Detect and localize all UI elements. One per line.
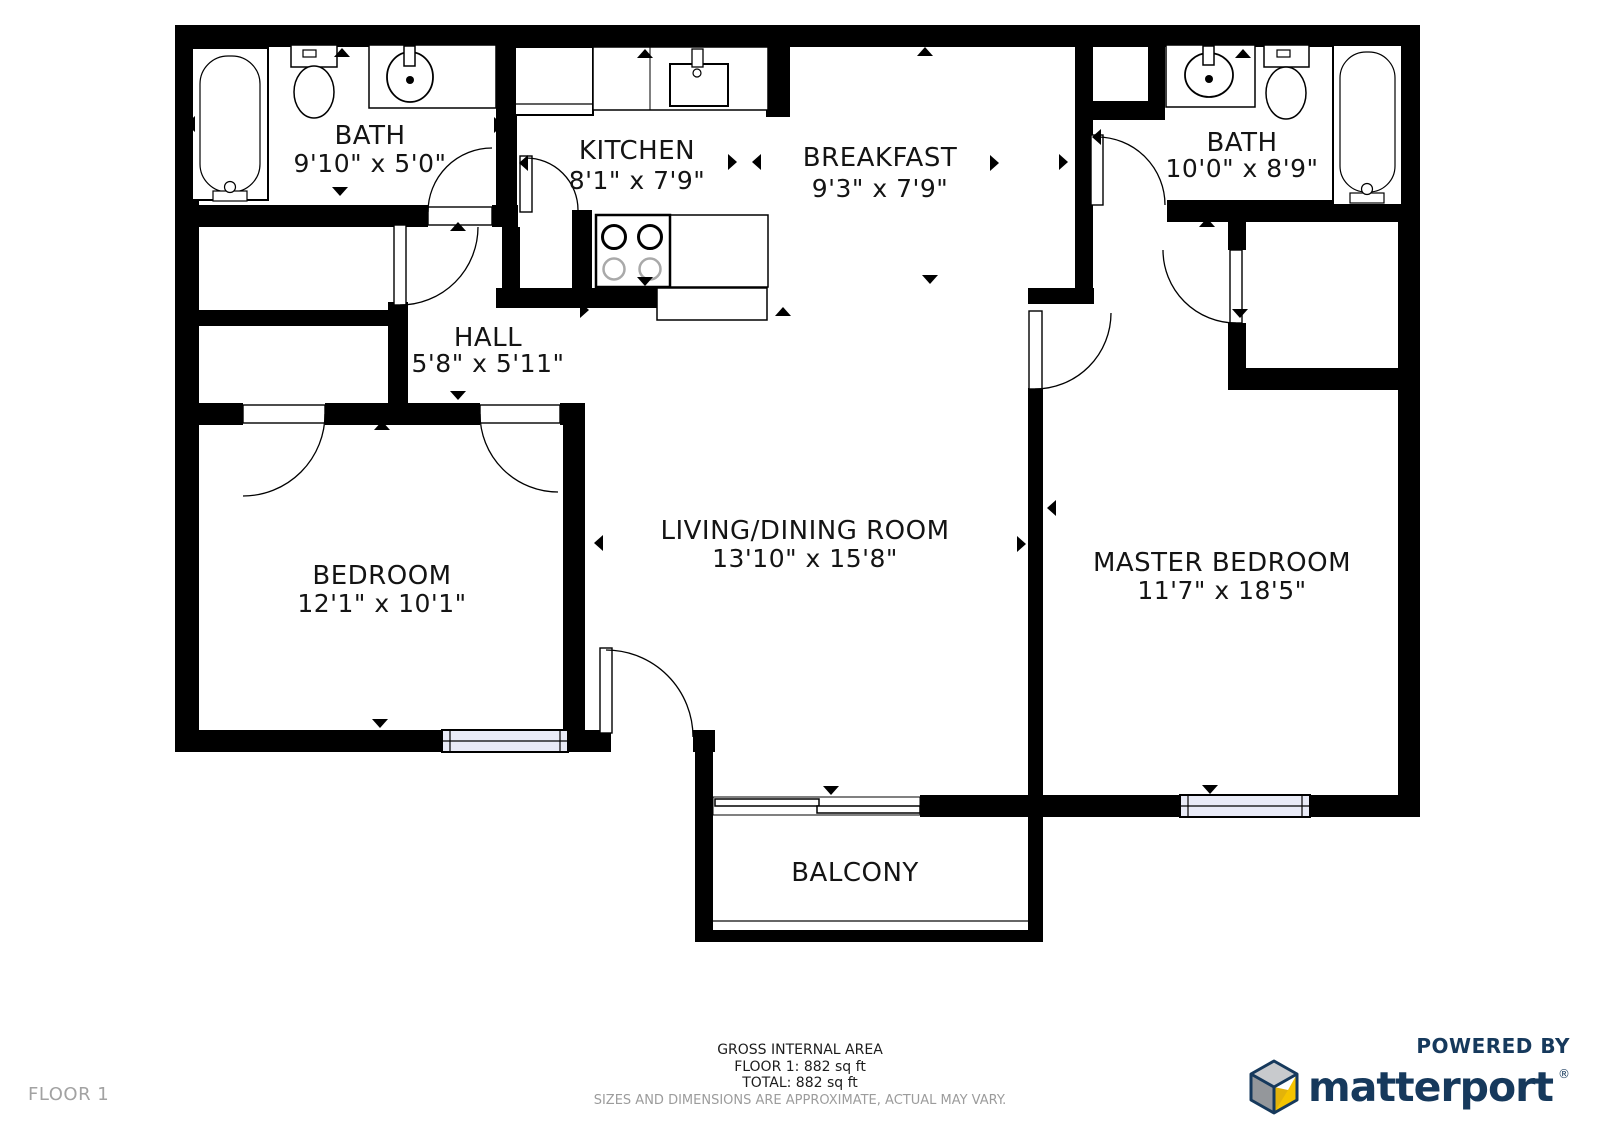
- bedroom-closet-door: [243, 405, 325, 496]
- bath2-door: [1091, 135, 1165, 205]
- room-labels: BATH 9'10" x 5'0" KITCHEN 8'1" x 7'9" BR…: [294, 121, 1352, 888]
- balcony-sliding-door: [713, 797, 920, 815]
- bathtub-icon: [1333, 45, 1402, 205]
- fridge-icon: [515, 47, 593, 115]
- bath1-label: BATH: [334, 121, 405, 151]
- master-closet-door: [1163, 250, 1242, 323]
- hall-dims: 5'8" x 5'11": [412, 349, 565, 378]
- living-label: LIVING/DINING ROOM: [660, 516, 949, 546]
- matterport-branding: POWERED BY matterport ®: [1247, 1034, 1570, 1115]
- master-entry-door: [1029, 311, 1111, 389]
- bath1-dims: 9'10" x 5'0": [294, 149, 447, 178]
- floor-label: FLOOR 1: [28, 1084, 109, 1105]
- living-exterior-door: [600, 648, 693, 737]
- counter-icon: [593, 47, 768, 110]
- windows: [442, 730, 1310, 921]
- master-dims: 11'7" x 18'5": [1137, 576, 1306, 605]
- floor-plan-svg: BATH 9'10" x 5'0" KITCHEN 8'1" x 7'9" BR…: [0, 0, 1600, 1131]
- balcony-label: BALCONY: [791, 858, 919, 888]
- living-dims: 13'10" x 15'8": [712, 544, 898, 573]
- bedroom-label: BEDROOM: [312, 561, 451, 591]
- toilet-icon: [1264, 45, 1309, 119]
- stove-icon: [596, 215, 768, 287]
- breakfast-dims: 9'3" x 7'9": [812, 174, 949, 203]
- bath2-dims: 10'0" x 8'9": [1166, 154, 1319, 183]
- bedroom-dims: 12'1" x 10'1": [297, 589, 466, 618]
- breakfast-label: BREAKFAST: [803, 143, 957, 173]
- powered-by-text: POWERED BY: [1416, 1034, 1570, 1058]
- master-window: [1180, 795, 1310, 817]
- sink-icon: [369, 45, 496, 108]
- peninsula-counter: [657, 288, 767, 320]
- brand-wordmark: matterport: [1308, 1067, 1553, 1108]
- hall-door: [394, 225, 478, 305]
- bedroom-door: [480, 405, 560, 492]
- matterport-cube-icon: [1247, 1059, 1301, 1115]
- toilet-icon: [291, 45, 337, 118]
- bathtub-icon: [192, 48, 268, 201]
- registered-trademark: ®: [1558, 1067, 1570, 1081]
- floorplan-page: { "rooms": { "bath1": {"name": "BATH", "…: [0, 0, 1600, 1131]
- master-label: MASTER BEDROOM: [1093, 548, 1351, 578]
- bedroom-window: [442, 730, 568, 752]
- kitchen-dims: 8'1" x 7'9": [569, 166, 706, 195]
- kitchen-label: KITCHEN: [579, 136, 695, 166]
